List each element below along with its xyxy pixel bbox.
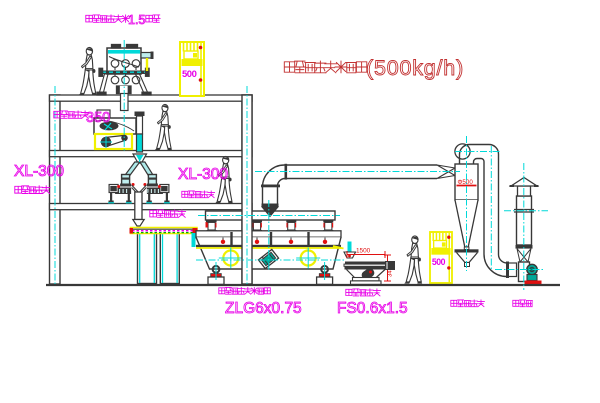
svg-text:500: 500 — [182, 69, 197, 80]
svg-text:XL-300: XL-300 — [14, 163, 64, 180]
svg-text:FS0.6x1.5: FS0.6x1.5 — [337, 300, 408, 317]
svg-text:500: 500 — [432, 257, 446, 267]
svg-text:1500: 1500 — [356, 248, 371, 255]
svg-text:(500kg/h): (500kg/h) — [366, 56, 464, 80]
svg-text:ZLG6x0.75: ZLG6x0.75 — [225, 300, 302, 317]
svg-text:350: 350 — [86, 110, 110, 126]
svg-text:1.5: 1.5 — [128, 13, 145, 27]
svg-text:Φ500: Φ500 — [458, 179, 474, 186]
svg-text:XL-300: XL-300 — [178, 166, 228, 183]
